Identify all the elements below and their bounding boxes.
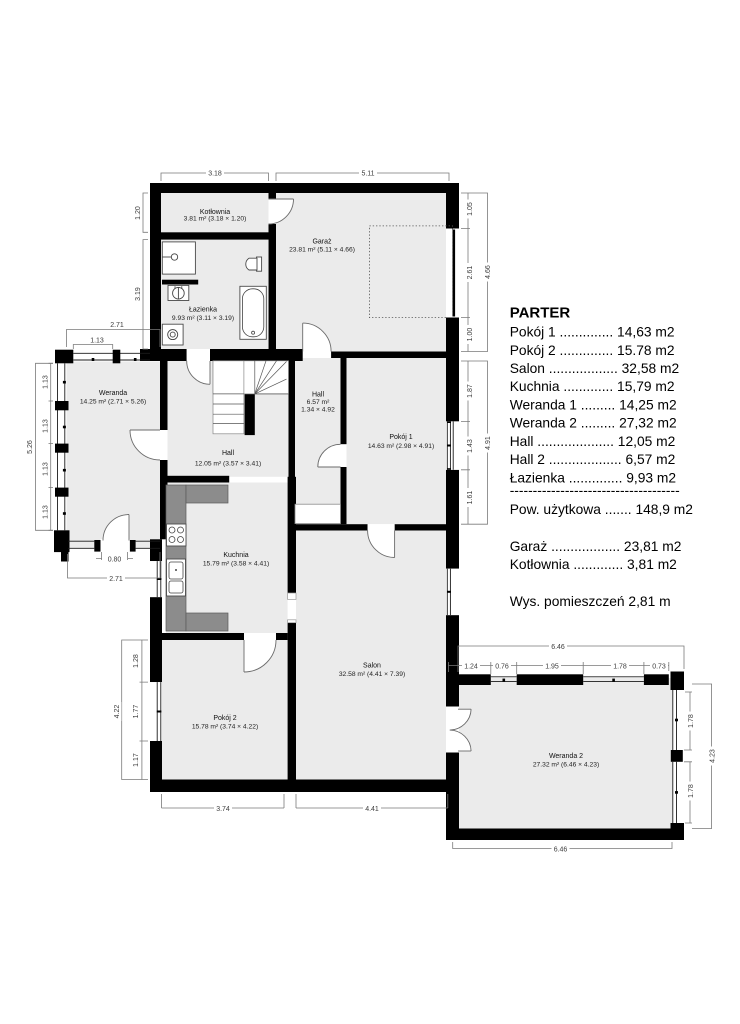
svg-text:Łazienka: Łazienka	[189, 307, 217, 314]
svg-text:------------------------------: -------------------------------------	[510, 483, 680, 498]
svg-text:1.78: 1.78	[688, 714, 695, 728]
svg-text:Pokój 2 .............. 15.78 m: Pokój 2 .............. 15.78 m2	[510, 343, 675, 358]
svg-text:1.24: 1.24	[464, 664, 478, 671]
svg-text:12.05 m² (3.57 × 3.41): 12.05 m² (3.57 × 3.41)	[195, 461, 261, 468]
svg-text:Weranda: Weranda	[99, 390, 127, 397]
svg-text:4.66: 4.66	[485, 265, 492, 279]
svg-text:3.18: 3.18	[208, 171, 222, 178]
svg-text:1.78: 1.78	[613, 664, 627, 671]
svg-text:Weranda 1 ......... 14,25 m2: Weranda 1 ......... 14,25 m2	[510, 397, 677, 412]
svg-text:14.63 m² (2.98 × 4.91): 14.63 m² (2.98 × 4.91)	[368, 443, 434, 450]
svg-text:2.71: 2.71	[109, 576, 123, 583]
svg-text:Garaż: Garaż	[312, 239, 332, 246]
svg-text:1.00: 1.00	[467, 328, 474, 342]
svg-text:Kotłownia ............. 3,81 m: Kotłownia ............. 3,81 m2	[510, 557, 677, 572]
svg-text:Salon: Salon	[363, 663, 381, 670]
svg-text:1.05: 1.05	[467, 202, 474, 216]
svg-text:Kuchnia ............. 15,79 m2: Kuchnia ............. 15,79 m2	[510, 379, 675, 394]
svg-text:3.19: 3.19	[135, 287, 142, 301]
svg-text:1.78: 1.78	[688, 784, 695, 798]
svg-text:1.28: 1.28	[133, 654, 140, 668]
svg-text:Hall .................... 12,0: Hall .................... 12,05 m2	[510, 434, 676, 449]
svg-text:Garaż .................. 23,81: Garaż .................. 23,81 m2	[510, 539, 682, 554]
svg-text:5.26: 5.26	[27, 440, 34, 454]
svg-text:9.93 m² (3.11 × 3.19): 9.93 m² (3.11 × 3.19)	[172, 315, 234, 322]
svg-text:6.46: 6.46	[551, 644, 565, 651]
svg-text:5.11: 5.11	[361, 171, 374, 178]
svg-text:2.61: 2.61	[467, 266, 474, 280]
svg-text:Hall: Hall	[222, 450, 235, 457]
svg-text:Kuchnia: Kuchnia	[223, 552, 248, 559]
svg-text:4.41: 4.41	[365, 806, 379, 813]
svg-text:Pokój 2: Pokój 2	[213, 715, 236, 722]
svg-text:6.57 m²: 6.57 m²	[307, 399, 330, 406]
svg-text:1.87: 1.87	[467, 384, 474, 398]
svg-text:Weranda 2: Weranda 2	[549, 753, 583, 760]
svg-text:Salon .................. 32,58: Salon .................. 32,58 m2	[510, 361, 679, 376]
svg-text:Weranda 2 ......... 27,32 m2: Weranda 2 ......... 27,32 m2	[510, 416, 677, 431]
svg-text:6.46: 6.46	[554, 847, 568, 854]
svg-text:3.74: 3.74	[216, 806, 230, 813]
svg-text:1.34 × 4.92: 1.34 × 4.92	[301, 407, 335, 414]
svg-text:15.79 m² (3.58 × 4.41): 15.79 m² (3.58 × 4.41)	[203, 561, 269, 568]
svg-text:4.23: 4.23	[710, 749, 717, 763]
svg-text:Hall 2 ................... 6,5: Hall 2 ................... 6,57 m2	[510, 452, 676, 467]
svg-text:3.81 m² (3.18 × 1.20): 3.81 m² (3.18 × 1.20)	[184, 216, 247, 223]
svg-text:15.78 m² (3.74 × 4.22): 15.78 m² (3.74 × 4.22)	[192, 724, 258, 731]
svg-text:Pow. użytkowa ....... 148,9 m2: Pow. użytkowa ....... 148,9 m2	[510, 502, 693, 517]
svg-text:1.43: 1.43	[467, 439, 474, 453]
svg-text:Hall: Hall	[312, 392, 325, 399]
svg-text:2.71: 2.71	[110, 322, 124, 329]
svg-text:PARTER: PARTER	[510, 305, 571, 322]
svg-text:1.13: 1.13	[43, 419, 50, 433]
svg-text:1.77: 1.77	[133, 705, 140, 719]
svg-text:1.17: 1.17	[133, 753, 140, 767]
svg-text:4.91: 4.91	[485, 436, 492, 450]
svg-text:1.13: 1.13	[90, 338, 104, 345]
svg-text:0.80: 0.80	[108, 557, 122, 564]
svg-text:23.81 m² (5.11 × 4.66): 23.81 m² (5.11 × 4.66)	[289, 247, 355, 254]
svg-text:1.13: 1.13	[43, 505, 50, 519]
svg-text:1.13: 1.13	[43, 375, 50, 389]
svg-text:Wys. pomieszczeń 2,81 m: Wys. pomieszczeń 2,81 m	[510, 594, 671, 609]
svg-text:1.95: 1.95	[545, 664, 559, 671]
svg-text:0.76: 0.76	[495, 664, 509, 671]
svg-text:Pokój 1: Pokój 1	[389, 434, 412, 441]
svg-text:32.58 m² (4.41 × 7.39): 32.58 m² (4.41 × 7.39)	[339, 671, 405, 678]
svg-text:Pokój 1 .............. 14,63 m: Pokój 1 .............. 14,63 m2	[510, 324, 675, 339]
svg-text:4.22: 4.22	[114, 705, 121, 719]
svg-text:14.25 m² (2.71 × 5.26): 14.25 m² (2.71 × 5.26)	[80, 399, 146, 406]
svg-text:1.20: 1.20	[135, 206, 142, 220]
svg-text:0.73: 0.73	[652, 664, 666, 671]
svg-text:27.32 m² (6.46 × 4.23): 27.32 m² (6.46 × 4.23)	[533, 762, 599, 769]
svg-text:1.13: 1.13	[43, 462, 50, 476]
svg-text:1.61: 1.61	[467, 491, 474, 505]
